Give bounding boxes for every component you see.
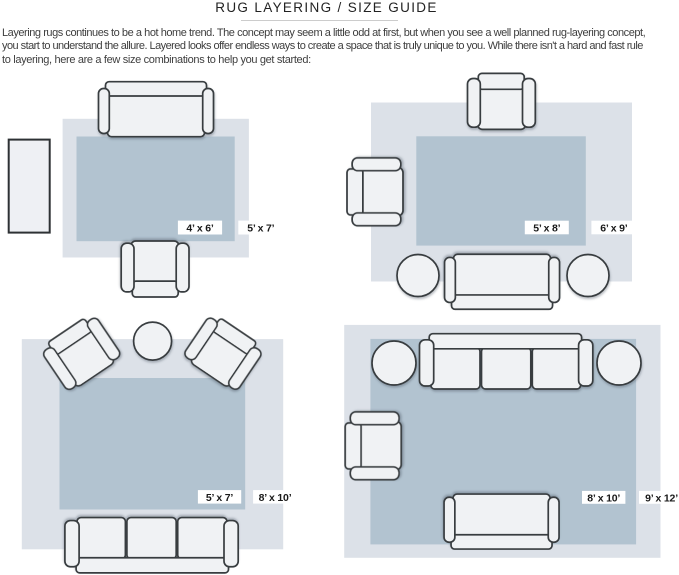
svg-text:5’ x 7’: 5’ x 7’ (206, 492, 233, 504)
svg-text:8’ x 10’: 8’ x 10’ (259, 492, 292, 504)
svg-text:9’ x 12’: 9’ x 12’ (645, 492, 678, 504)
svg-text:5’ x 7’: 5’ x 7’ (247, 222, 274, 234)
svg-text:6’ x 9’: 6’ x 9’ (600, 222, 627, 234)
svg-text:4’ x 6’: 4’ x 6’ (186, 222, 213, 234)
svg-text:8’ x 10’: 8’ x 10’ (587, 492, 620, 504)
svg-text:5’ x 8’: 5’ x 8’ (533, 222, 560, 234)
